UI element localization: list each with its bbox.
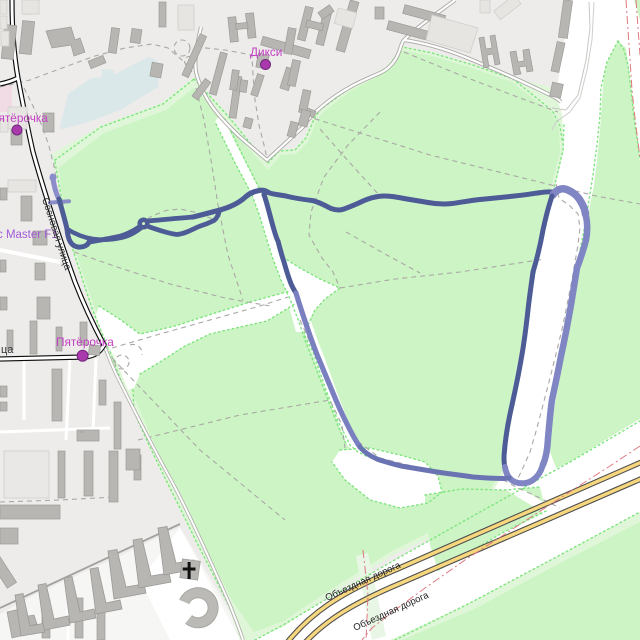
svg-text:Пятёрочка: Пятёрочка — [0, 111, 48, 125]
svg-text:ца: ца — [1, 344, 14, 356]
svg-text:Дикси: Дикси — [250, 45, 282, 59]
svg-text:с Master F1: с Master F1 — [0, 229, 58, 241]
svg-text:Пятёрочка: Пятёрочка — [56, 335, 114, 349]
